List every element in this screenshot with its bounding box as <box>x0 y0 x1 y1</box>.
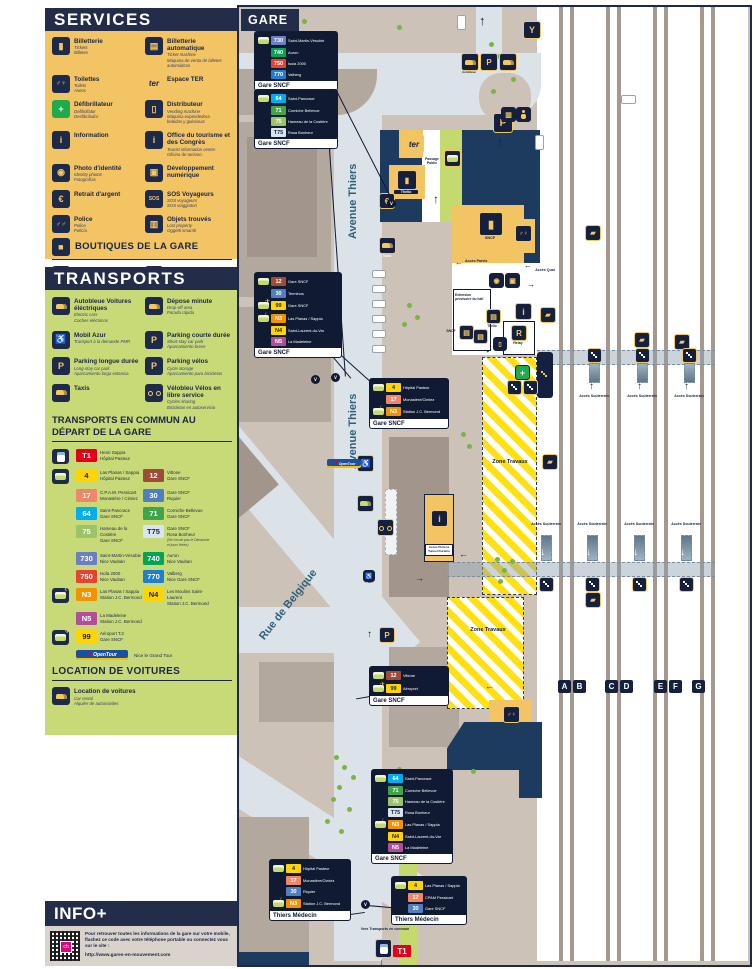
callout-destination: Hôpital Pasteur <box>403 385 430 390</box>
line-badge-17: 17 <box>76 489 97 502</box>
transit-line: 750Isola 2000Nice Vauban <box>76 570 143 583</box>
callout-line-row: 30Terminus <box>258 289 338 298</box>
callout-destination: Las Planas / Sappia <box>425 883 460 888</box>
line-dest-2: Nice Vauban <box>100 577 125 583</box>
glyph <box>395 882 406 889</box>
services-items: ▮BilletterieTicketsBilletes▤Billetterie … <box>52 37 232 234</box>
composteur-icon: ▰ <box>542 454 558 470</box>
service-item: ▤Billetterie automatiqueTicket machineMá… <box>145 37 232 68</box>
night-icon: ☾ <box>373 406 384 417</box>
transit-line: 30Gare SNCFRiquier <box>143 489 210 502</box>
transport-item: Dépose minuteDrop-off areaParada rápida <box>145 297 232 323</box>
service-item: SOSSOS VoyageursSOS voyageursSOS viaggia… <box>145 190 232 209</box>
service-item-sub: bebidas y golosinas <box>167 119 210 124</box>
line-dest-1: Les Moulins Saint-Laurent <box>167 589 210 601</box>
service-item-sub: Desfibrilador <box>74 114 113 119</box>
toilets-icon: ♂♀ <box>52 75 70 93</box>
callout-badge-17: 17 <box>286 876 301 885</box>
callout-badge-12: 12 <box>271 277 286 286</box>
transport-item: Taxis <box>52 384 139 410</box>
billetterie-automatique-icon: ▤ <box>473 329 488 344</box>
tree <box>351 775 356 780</box>
service-item-name: Développement numérique <box>167 165 232 179</box>
tree <box>502 568 507 573</box>
sncf-label-1: SNCF <box>479 236 501 240</box>
tree <box>510 559 515 564</box>
service-item: ▥Objets trouvésLost propertyOggetti smar… <box>145 215 232 234</box>
transports-items: Autobleue Voitures éléctriquesElectric c… <box>52 297 232 410</box>
rail-yard <box>537 7 715 961</box>
callout-badge-T75: T75 <box>271 128 286 137</box>
avenue-thiers-label-1: Avenue Thiers <box>347 164 359 239</box>
travaux-arrow: → <box>415 573 424 583</box>
defib-icon: + <box>52 100 70 118</box>
callout-badge-730: 730 <box>271 36 286 45</box>
callout-line-row: 770Valberg <box>258 70 334 79</box>
souterrain-arrow-up: ↑ <box>637 381 642 392</box>
souterrain-arrow-up: ↑ <box>684 381 689 392</box>
callout-badge-99: 99 <box>386 684 401 693</box>
night-icon: ☾ <box>375 819 386 830</box>
callout-line-row: T75Rosa Bonheur <box>375 808 449 817</box>
line-note: (Ne circule pas le Dimanche et jours fér… <box>167 538 210 547</box>
callout-badge-4: 4 <box>386 383 401 392</box>
glyph <box>258 95 269 102</box>
office-tourisme-caption: Accès Piétons Tunnel Durante <box>425 544 453 556</box>
callout-footer: Gare SNCF <box>255 81 337 90</box>
distributeur-icon: ▯ <box>493 337 507 351</box>
glyph <box>373 672 384 679</box>
vending-icon: ▯ <box>145 100 163 118</box>
callout-destination: Las Planas / Sappia <box>288 316 323 321</box>
service-item: iOffice du tourisme et des CongrèsTouris… <box>145 131 232 157</box>
souterrain-arrow-down: ↓ <box>680 547 685 558</box>
line-destinations: Aéroport T.2Gare SNCF <box>100 630 124 643</box>
info-header: INFO+ <box>45 901 246 926</box>
platform-letter-B: B <box>573 680 586 693</box>
service-item-text: ToilettesToiletsAseos <box>74 75 99 94</box>
parking-arrow: ↑ <box>497 135 503 149</box>
line-dest-2: Station J.C. Bermond <box>167 601 210 607</box>
service-item-sub: Fotografías <box>74 177 121 182</box>
callout-footer: Gare SNCF <box>370 419 448 428</box>
line-dest-2: Gare SNCF <box>100 538 143 544</box>
gares-connexions-label: Gares & Connexions <box>239 5 245 7</box>
transit-line: 4Las Planas / SappiaHôpital Pasteur <box>76 469 143 482</box>
service-item-name: Toilettes <box>74 76 99 83</box>
car <box>372 330 386 338</box>
location-title: LOCATION DE VOITURES <box>52 666 180 677</box>
callout-destination: Saint-Pancrace <box>405 776 432 781</box>
callout-destination: Aéroport <box>403 686 418 691</box>
souterrain-arrow-down: ↓ <box>586 547 591 558</box>
line-badge-750: 750 <box>76 570 97 583</box>
traveler-icon <box>516 107 531 122</box>
callout-destination: Rosa Bonheur <box>288 130 313 135</box>
service-item-name: Office du tourisme et des Congrès <box>167 132 232 146</box>
tree <box>491 89 496 94</box>
transit-line-row: 750Isola 2000Nice Vauban770ValbergNice G… <box>52 570 232 583</box>
callout-footer: Thiers Médecin <box>392 915 466 924</box>
transports-title: TRANSPORTS <box>54 269 186 289</box>
tree <box>498 579 503 584</box>
transit-line: T75Gare SNCFRosa Bonheur(Ne circule pas … <box>143 525 210 547</box>
callout-line-row: 4Las Planas / Sappia <box>395 880 463 891</box>
transport-item-text: Dépose minuteDrop-off areaParada rápida <box>167 297 212 316</box>
callout-destination: Gare SNCF <box>288 279 308 284</box>
callout-destination: Terminus <box>288 291 304 296</box>
building <box>247 137 317 257</box>
platform-letter-C: C <box>605 680 618 693</box>
tree <box>511 77 516 82</box>
moon-icon: ☾ <box>280 898 284 903</box>
glyph <box>360 501 371 506</box>
platform-letter-A: A <box>558 680 571 693</box>
night-bus-icon: ☾ <box>52 588 69 603</box>
service-item-text: Retrait d'argent <box>74 190 120 198</box>
transit-line: 740AuronNice Vauban <box>143 552 210 565</box>
billetterie-automatique-thello-icon: ▤ <box>486 309 501 324</box>
callout-destination: Las Planas / Sappia <box>405 822 440 827</box>
stairs-icon <box>507 380 522 395</box>
tree <box>339 829 344 834</box>
callout-destination: Auron <box>288 50 298 55</box>
transport-item: Autobleue Voitures éléctriquesElectric c… <box>52 297 139 323</box>
shopping-bag-icon: ■ <box>52 238 70 256</box>
station-building-south-2 <box>519 770 542 798</box>
callout-badge-30: 30 <box>286 887 301 896</box>
line-dest-2: Station J.C. Bermond <box>100 619 142 625</box>
tree <box>471 769 476 774</box>
tram-icon <box>52 449 69 464</box>
y-badge: Y <box>523 21 541 39</box>
location-item-text: Location de voituresCar rentalAlquiler d… <box>74 687 136 706</box>
bike-icon <box>145 384 163 402</box>
callout-line-row: N4Saint-Laurent-du-Var <box>258 326 338 335</box>
callout-line-row: 75Hameau de la Costière <box>375 797 449 806</box>
callout-marker: ∨ <box>311 375 320 384</box>
autobleue-label: Autobleue <box>459 70 479 74</box>
ter-icon: ter <box>145 75 163 93</box>
callout-marker: ∨ <box>331 373 340 382</box>
underground-passage-2 <box>447 562 715 577</box>
acces-souterrain-label: Accès Souterrain <box>578 394 610 398</box>
line-destinations: Las Planas / SappiaStation J.C. Bermond <box>100 588 142 601</box>
line-dest-2: Riquier <box>167 496 190 502</box>
service-item-name: Retrait d'argent <box>74 191 120 198</box>
transport-item-name: Vélobleu Vélos en libre service <box>167 385 232 399</box>
service-item-text: Espace TER <box>167 75 203 83</box>
glyph <box>379 524 392 531</box>
bus-glyph <box>55 592 66 599</box>
up-arrow: ↑ <box>479 13 486 28</box>
glyph <box>447 155 458 162</box>
acces-souterrain-label: Accès Souterrain <box>626 394 658 398</box>
service-item-text: Développement numérique <box>167 164 232 179</box>
callout-destination: Valberg <box>288 72 301 77</box>
transit-line-row: N5La MadeleineStation J.C. Bermond <box>52 612 232 625</box>
callout-destination: Saint-Pancrace <box>288 96 315 101</box>
opentour-label: Nice le Grand Tour <box>134 650 172 658</box>
line-row-slot <box>52 469 76 484</box>
bus-icon <box>258 93 269 104</box>
callout-destination: Rosa Bonheur <box>405 810 430 815</box>
service-item-text: Billetterie automatiqueTicket machineMáq… <box>167 37 232 68</box>
line-destinations: La MadeleineStation J.C. Bermond <box>100 612 142 625</box>
transit-line: 17C.P.A.M. PessicartMonastère / Cimiez <box>76 489 143 502</box>
line-badge-740: 740 <box>143 552 164 565</box>
line-dest-2: Nice Vauban <box>167 559 192 565</box>
location-item-sub: Alquiler de automóviles <box>74 701 136 706</box>
taxis-label: Taxis <box>377 254 397 258</box>
callout-destination: La Madeleine <box>405 845 428 850</box>
line-dest-2: Gare SNCF <box>100 637 124 643</box>
services-panel: ▮BilletterieTicketsBilletes▤Billetterie … <box>45 31 237 259</box>
bus-icon <box>52 469 69 484</box>
callout-footer: Gare SNCF <box>255 348 341 357</box>
qr-code: ch <box>50 931 80 961</box>
service-item-sub: Policía <box>74 228 93 233</box>
callout-destination: CPAM Pessicart <box>425 895 453 900</box>
composteur-icon: ▰ <box>540 307 556 323</box>
line-dest-2: Nice Vauban <box>100 559 141 565</box>
transport-item: PParking longue duréeLong-stay car parkA… <box>52 357 139 376</box>
tree <box>347 807 352 812</box>
tourisme-arrow: ← <box>459 549 468 559</box>
glyph <box>503 60 514 65</box>
service-item-name: Objets trouvés <box>167 216 211 223</box>
glyph <box>382 243 393 248</box>
callout-destination: Saint-Laurent-du-Var <box>405 834 441 839</box>
service-item-sub: Máquina de venta de billetes automáticos <box>167 58 232 68</box>
bus-stop-callout: 730Saint-Martin-Vésubie740Auron750Isola … <box>255 32 337 90</box>
info-text: Pour retrouver toutes les informations d… <box>85 931 232 950</box>
glyph <box>527 384 529 386</box>
glyph <box>541 371 543 373</box>
transport-item-text: Mobil AzurTransport à la demande PMR <box>74 331 130 344</box>
callout-badge-N5: N5 <box>271 337 286 346</box>
glyph <box>465 60 476 65</box>
callout-destination: Station J.C. Bermond <box>303 901 340 906</box>
tree <box>334 755 339 760</box>
taxis-icon <box>379 237 396 254</box>
tree <box>495 557 500 562</box>
tree <box>342 765 347 770</box>
night-icon: ☾ <box>258 313 269 324</box>
moon-icon: ☾ <box>265 313 269 318</box>
moon-icon: ☾ <box>380 406 384 411</box>
service-item: ▮BilletterieTicketsBilletes <box>52 37 139 68</box>
underground-stairs-icon <box>682 348 697 363</box>
callout-destination: Hôpital Pasteur <box>303 866 330 871</box>
callout-line-row: ✈99Gare SNCF <box>258 300 338 311</box>
callout-marker: ∨ <box>387 199 396 208</box>
velobleu-icon <box>377 519 394 536</box>
bus-icon <box>395 880 406 891</box>
line-destinations: Corniche BellevueGare SNCF <box>167 507 203 520</box>
espace-ter-icon: ter <box>404 134 424 154</box>
line-destinations: Henri SappiaHôpital Pasteur <box>100 449 130 462</box>
souterrain-arrow-down: ↓ <box>540 547 545 558</box>
callout-badge-N3: N3 <box>386 407 401 416</box>
car <box>621 95 636 104</box>
line-destinations: Les Moulins Saint-LaurentStation J.C. Be… <box>167 588 210 607</box>
tree <box>461 432 466 437</box>
parking-velos-icon: P <box>379 627 395 643</box>
transport-item-text: Vélobleu Vélos en libre serviceCycles sh… <box>167 384 232 410</box>
callout-line-row: N5La Madeleine <box>258 337 338 346</box>
moon-icon: ☾ <box>65 588 69 593</box>
callout-footer: Thiers Médecin <box>270 911 350 920</box>
drop-icon <box>145 297 163 315</box>
underground-stairs-icon <box>635 348 650 363</box>
hall-arrow: ↑ <box>433 192 439 206</box>
underground-ramp <box>589 363 600 383</box>
line-dest-2: Monastère / Cimiez <box>100 496 138 502</box>
service-item: €Retrait d'argent <box>52 190 139 209</box>
callout-line-row: 64Saint-Pancrace <box>258 93 334 104</box>
service-item-name: Distributeur <box>167 101 210 108</box>
service-item-sub: Billetes <box>74 50 103 55</box>
callout-footer: Gare SNCF <box>370 696 448 705</box>
line-destinations: ValbergNice Gare SNCF <box>167 570 200 583</box>
callout-line-row: N4Saint-Laurent-du-Var <box>375 832 449 841</box>
transport-item-sub: Transport à la demande PMR <box>74 339 130 344</box>
callout-destination: Monastère/Cimiez <box>303 878 334 883</box>
callout-destination: Isola 2000 <box>288 61 306 66</box>
transit-line-row: 4Las Planas / SappiaHôpital Pasteur12Vit… <box>52 469 232 484</box>
callout-line-row: 17Monastère/Cimiez <box>273 876 347 885</box>
plane-icon: ✈ <box>265 299 270 305</box>
line-destinations: Las Planas / SappiaHôpital Pasteur <box>100 469 139 482</box>
airbus-icon: ✈ <box>373 683 384 694</box>
tree <box>415 315 420 320</box>
line-dest-2: Hôpital Pasteur <box>100 456 130 462</box>
tree <box>302 19 307 24</box>
glyph <box>589 581 591 583</box>
bus-icon <box>258 35 269 46</box>
service-item-name: Police <box>74 216 93 223</box>
line-destinations: C.P.A.M. PessicartMonastère / Cimiez <box>100 489 138 502</box>
acces-souterrain-label: Accès Souterrain <box>576 522 608 526</box>
line-dest-1: Hameau de la Costière <box>100 526 143 538</box>
opentour-row: ✶ OpenTour Nice le Grand Tour <box>52 650 232 660</box>
transport-item-text: Taxis <box>74 384 90 392</box>
service-item-text: Office du tourisme et des CongrèsTourist… <box>167 131 232 157</box>
transports-header: TRANSPORTS <box>45 267 246 290</box>
commun-title: TRANSPORTS EN COMMUN AU DÉPART DE LA GAR… <box>52 415 232 443</box>
service-item: +DéfibrillateurDefibrillatorDesfibrilado… <box>52 100 139 124</box>
transport-item-name: Parking longue durée <box>74 358 138 365</box>
transit-lines-list: T1Henri SappiaHôpital Pasteur4Las Planas… <box>52 449 232 645</box>
callout-line-row: 17CPAM Pessicart <box>395 893 463 902</box>
service-item-name: SOS Voyageurs <box>167 191 214 198</box>
transit-line: 12VittoneGare SNCF <box>143 469 210 482</box>
transport-item-text: Autobleue Voitures éléctriquesElectric c… <box>74 297 139 323</box>
line-badge-75: 75 <box>76 525 97 538</box>
quai-arrow-right: → <box>527 280 535 289</box>
zone-travaux-label-1: Zone Travaux <box>487 459 533 466</box>
glyph <box>258 37 269 44</box>
station-map: GAREAvenue ThiersAvenue ThiersRue de Bel… <box>237 5 752 967</box>
escalator-icon <box>537 352 553 398</box>
glyph <box>543 581 545 583</box>
opentour-logo: ✶ OpenTour <box>76 650 128 660</box>
line-badge-99: 99 <box>76 630 97 643</box>
transport-item-name: Autobleue Voitures éléctriques <box>74 298 139 312</box>
callout-destination: Riquier <box>303 889 315 894</box>
line-badge-30: 30 <box>143 489 164 502</box>
service-item-text: Information <box>74 131 109 139</box>
transport-item: PParking courte duréeShort-stay car park… <box>145 331 232 350</box>
callout-destination: Hameau de la Costière <box>288 119 328 124</box>
platform-letter-G: G <box>692 680 705 693</box>
line-destinations: Gare SNCFRosa Bonheur(Ne circule pas le … <box>167 525 210 547</box>
acces-souterrain-label: Accès Souterrain <box>623 522 655 526</box>
tram-arrow: ↓ <box>379 957 385 967</box>
tree <box>397 25 402 30</box>
tree <box>331 797 336 802</box>
moon-icon: ☾ <box>382 819 386 824</box>
transit-line: N5La MadeleineStation J.C. Bermond <box>76 612 143 625</box>
transport-item: PParking vélosCycle storageAparcamiento … <box>145 357 232 376</box>
toilettes-south-icon: ♂♀ <box>503 706 520 723</box>
transit-line: 71Corniche BellevueGare SNCF <box>143 507 210 520</box>
callout-line-row: N5La Madeleine <box>375 843 449 852</box>
transport-item-name: Mobil Azur <box>74 332 130 339</box>
callout-badge-64: 64 <box>388 774 403 783</box>
line-dest-2: Gare SNCF <box>100 514 130 520</box>
line-destinations: Hameau de la CostièreGare SNCF <box>100 525 143 544</box>
travaux-arrow-2: ← <box>485 681 494 691</box>
glyph <box>636 581 638 583</box>
footer-bar <box>239 952 309 965</box>
developpement-numerique-icon: ▣ <box>505 273 520 288</box>
car <box>535 135 544 150</box>
location-item: Location de voituresCar rentalAlquiler d… <box>52 687 232 706</box>
transit-line-row: 75Hameau de la CostièreGare SNCFT75Gare … <box>52 525 232 547</box>
callout-destination: Corniche Bellevue <box>288 108 320 113</box>
transit-line: 770ValbergNice Gare SNCF <box>143 570 210 583</box>
tree <box>402 322 407 327</box>
callout-line-row: ☾N3Las Planas / Sappia <box>258 313 338 324</box>
tree <box>337 785 342 790</box>
bus-glyph <box>55 634 66 641</box>
t1-badge: T1 <box>393 945 411 957</box>
bus-icon <box>258 276 269 287</box>
taxi-icon <box>52 384 70 402</box>
service-item: ▣Développement numérique <box>145 164 232 183</box>
callout-line-row: ☾N3Station J.C. Bermond <box>273 898 347 909</box>
callout-badge-17: 17 <box>386 395 401 404</box>
transit-line: 730Saint-Martin-VésubieNice Vauban <box>76 552 143 565</box>
info-url[interactable]: http://www.gares-en-mouvement.com <box>85 953 232 958</box>
city-block <box>259 662 334 722</box>
thello-label: Thello <box>394 190 418 194</box>
sos-icon: SOS <box>145 190 163 208</box>
bus-icon <box>273 863 284 874</box>
plane-icon: ✈ <box>65 629 70 635</box>
car-icon <box>52 687 70 705</box>
glyph <box>375 775 386 782</box>
service-item: ♂♀ToilettesToiletsAseos <box>52 75 139 94</box>
transit-line: N4Les Moulins Saint-LaurentStation J.C. … <box>143 588 210 607</box>
transit-line-row: 64Saint-PancraceGare SNCF71Corniche Bell… <box>52 507 232 520</box>
transport-item: Vélobleu Vélos en libre serviceCycles sh… <box>145 384 232 410</box>
callout-badge-N4: N4 <box>388 832 403 841</box>
glyph <box>686 352 688 354</box>
transport-item-name: Parking vélos <box>167 358 222 365</box>
